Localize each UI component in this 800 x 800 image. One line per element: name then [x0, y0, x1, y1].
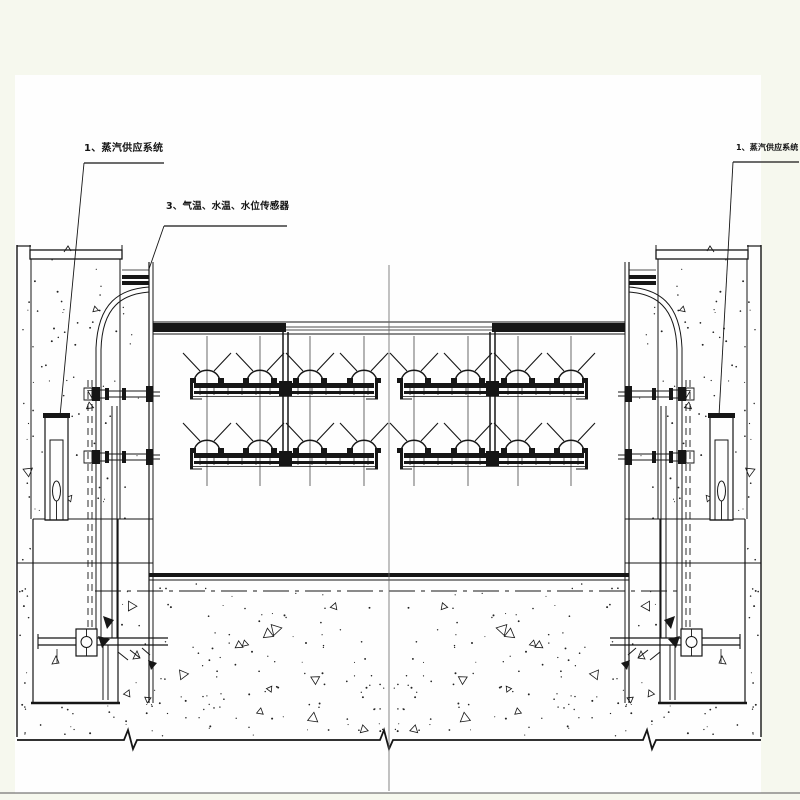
- steam-header-pipe: [153, 323, 286, 332]
- drawing-page: 1、蒸汽供应系统 3、气温、水温、水位传感器 1、蒸汽供应系统: [0, 0, 800, 800]
- label-steam-supply-right: 1、蒸汽供应系统: [736, 142, 798, 152]
- leader-line-sensors: [149, 226, 164, 269]
- spray-pipe-row2: [183, 423, 388, 469]
- label-steam-supply-left: 1、蒸汽供应系统: [84, 141, 163, 154]
- leader-line-left: [60, 163, 84, 416]
- steam-supply-unit: [43, 413, 70, 520]
- inlet-flange: [122, 275, 149, 279]
- right-half-structure: [390, 245, 761, 737]
- leader-line-right: [719, 162, 733, 416]
- technical-drawing: 1、蒸汽供应系统 3、气温、水温、水位传感器 1、蒸汽供应系统: [0, 0, 800, 800]
- left-half-structure: [17, 245, 388, 737]
- spray-pipe-row1: [183, 353, 388, 399]
- tank-side-wall: [122, 262, 153, 703]
- annotations: 1、蒸汽供应系统 3、气温、水温、水位传感器 1、蒸汽供应系统: [60, 141, 799, 416]
- label-sensors: 3、气温、水温、水位传感器: [166, 200, 290, 212]
- supply-drop-pipe: [279, 332, 292, 466]
- equipment-pit: [33, 519, 118, 703]
